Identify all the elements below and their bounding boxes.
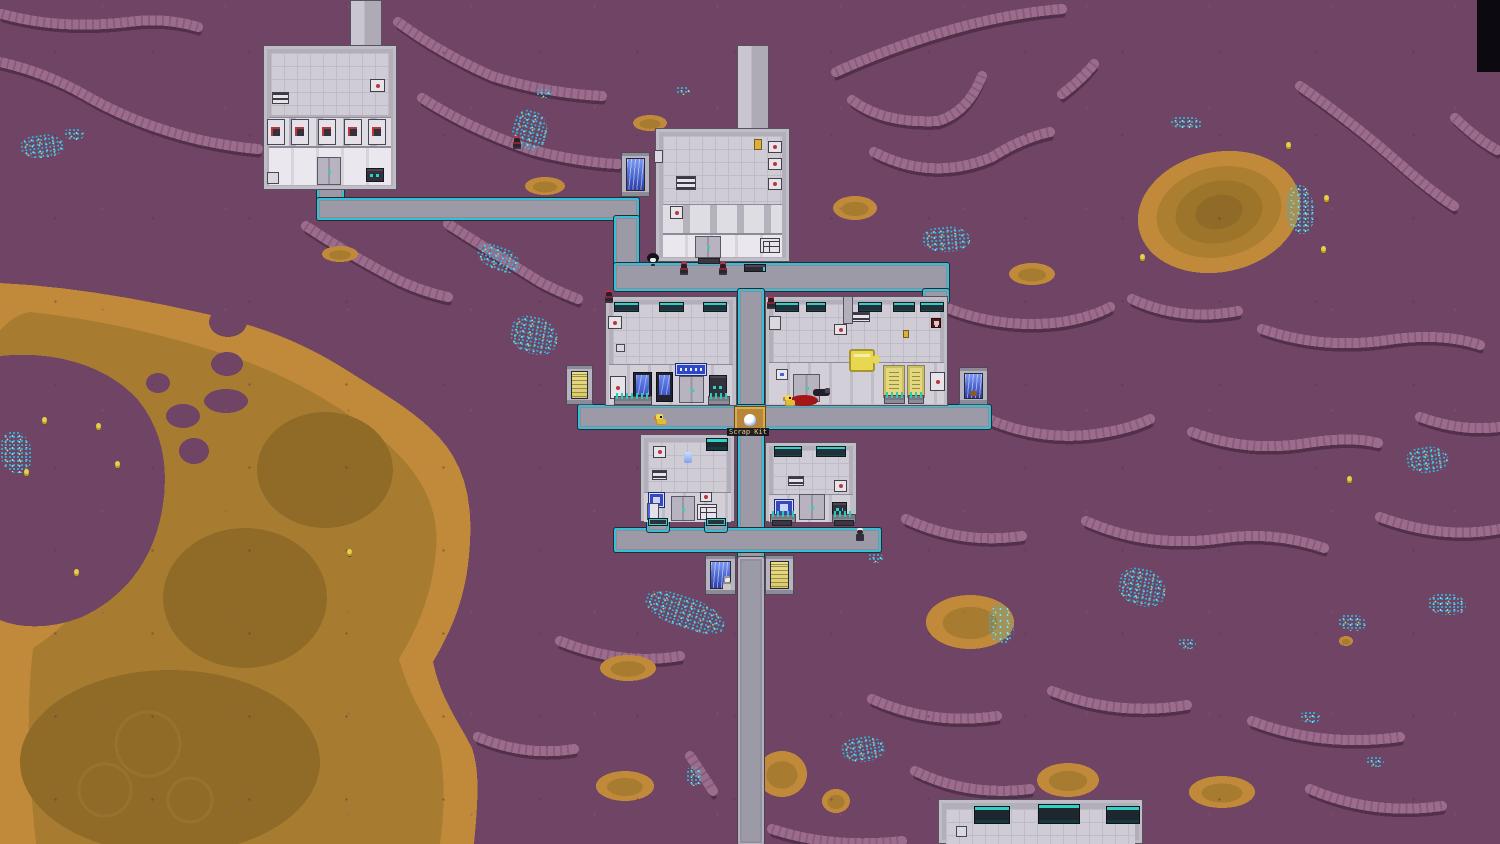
bunkhouse-device[interactable]	[370, 79, 385, 92]
depot-device[interactable]	[768, 158, 782, 170]
floor-unit[interactable]	[616, 344, 625, 352]
wall-vent	[816, 446, 846, 457]
small-critter[interactable]	[74, 569, 79, 576]
doormat	[834, 520, 854, 526]
depot-hall	[663, 136, 782, 204]
shop-lr-device[interactable]	[834, 480, 847, 492]
cafe-small-sign	[776, 369, 788, 380]
bunkhouse-crate[interactable]	[267, 172, 279, 184]
depot-atm[interactable]	[760, 238, 780, 253]
entry-mat	[706, 518, 726, 526]
street-bench[interactable]	[744, 264, 766, 272]
small-critter[interactable]	[115, 461, 120, 468]
shop-west-sign	[676, 364, 706, 375]
shop-ll-door[interactable]	[671, 496, 695, 521]
duck[interactable]	[784, 395, 796, 407]
cafe-kiosk[interactable]	[930, 372, 945, 391]
billboard-west-screen	[571, 371, 588, 399]
planter	[614, 396, 652, 405]
vending-machine[interactable]	[656, 372, 673, 402]
wall-vent	[703, 302, 727, 312]
cafe-crate[interactable]	[769, 316, 781, 330]
billboard-west[interactable]	[566, 365, 593, 405]
wall-vent	[858, 302, 882, 312]
teal-speckle-patch	[868, 553, 884, 563]
small-critter[interactable]	[1324, 195, 1329, 202]
teal-speckle-patch	[1338, 614, 1366, 631]
locker[interactable]	[318, 119, 336, 145]
teal-speckle-patch	[1170, 116, 1202, 129]
cafe-console[interactable]	[852, 312, 870, 322]
road-central-lower	[737, 556, 765, 844]
shop-west-hall	[613, 304, 729, 364]
villager-whitehair[interactable]	[855, 528, 865, 543]
bunkhouse-chimney[interactable]	[350, 0, 382, 50]
small-critter[interactable]	[1347, 476, 1352, 483]
teal-speckle-patch	[1300, 711, 1320, 723]
depot-console[interactable]	[676, 176, 696, 190]
corner-ui-panel	[1477, 0, 1500, 72]
gold-item[interactable]	[903, 330, 909, 338]
teal-speckle-patch	[1428, 593, 1466, 615]
depot-device[interactable]	[768, 141, 782, 153]
wall-vent	[893, 302, 915, 312]
small-critter[interactable]	[96, 423, 101, 430]
depot-door[interactable]	[695, 236, 721, 258]
skeleton-villager[interactable]	[721, 576, 732, 592]
cafe-device[interactable]	[834, 324, 847, 335]
shop-ll-device[interactable]	[700, 492, 712, 502]
doormat	[698, 258, 720, 264]
depot-device[interactable]	[670, 206, 683, 219]
wall-vent	[775, 302, 799, 312]
planter	[708, 396, 730, 405]
warehouse-tile	[956, 826, 967, 837]
villager-punk[interactable]	[718, 262, 728, 276]
depot-chimney[interactable]	[737, 45, 769, 130]
bunkhouse-terminal[interactable]	[366, 168, 384, 182]
billboard-north[interactable]	[621, 152, 650, 197]
billboard-east[interactable]	[959, 367, 988, 405]
shop-ll-device[interactable]	[653, 446, 666, 458]
teal-speckle-patch	[64, 128, 84, 140]
villager-afro[interactable]	[646, 253, 660, 269]
small-critter[interactable]	[1140, 254, 1145, 261]
villager-punk[interactable]	[679, 262, 689, 276]
small-critter[interactable]	[347, 549, 352, 556]
game-map[interactable]: Scrap Kit	[0, 0, 1500, 844]
doormat	[772, 520, 792, 526]
shop-lr-door[interactable]	[799, 494, 825, 520]
small-critter[interactable]	[24, 469, 29, 476]
teal-speckle-patch	[536, 88, 552, 98]
depot-device[interactable]	[768, 178, 782, 190]
depot-wall-unit[interactable]	[654, 150, 663, 163]
gold-item[interactable]	[754, 139, 762, 150]
locker[interactable]	[368, 119, 386, 145]
shop-lr-console[interactable]	[788, 476, 804, 486]
villager-punk[interactable]	[512, 136, 522, 150]
warehouse-vent	[974, 806, 1010, 824]
wall-vent	[806, 302, 826, 312]
villager-punk[interactable]	[604, 290, 614, 304]
duck[interactable]	[655, 414, 667, 426]
road-west-avenue	[316, 197, 640, 221]
dark-creature[interactable]	[813, 388, 830, 397]
road-south-street	[577, 404, 992, 430]
billboard-south-right-screen	[770, 561, 789, 589]
teal-speckle-patch	[686, 766, 702, 786]
billboard-south-right[interactable]	[765, 555, 794, 595]
small-critter[interactable]	[1321, 246, 1326, 253]
road-north-street	[613, 262, 950, 292]
wall-vent	[614, 302, 639, 312]
shop-ll-console[interactable]	[652, 470, 667, 480]
hologram-figure	[684, 452, 692, 463]
coffee-cup-sign	[849, 349, 875, 372]
entry-mat	[648, 518, 668, 526]
villager-punk[interactable]	[766, 296, 776, 310]
shop-west-door[interactable]	[679, 376, 704, 403]
planter	[884, 395, 905, 404]
locker[interactable]	[344, 119, 362, 145]
road-west-leg	[613, 215, 640, 269]
teal-speckle-patch	[1366, 756, 1384, 767]
locker[interactable]	[267, 119, 285, 145]
deer-figure	[970, 391, 977, 396]
skull-poster	[931, 318, 941, 328]
bunkhouse-console[interactable]	[272, 92, 289, 104]
warehouse-vent	[1106, 806, 1140, 824]
warehouse-vent	[1038, 804, 1080, 824]
planter	[908, 395, 924, 404]
wall-vent	[774, 446, 802, 457]
small-critter[interactable]	[42, 417, 47, 424]
roof-unit	[706, 438, 728, 451]
shop-west-device[interactable]	[608, 316, 622, 329]
bunkhouse-door[interactable]	[317, 157, 341, 185]
teal-speckle-patch	[676, 86, 690, 95]
item-name-tag: Scrap Kit	[727, 428, 769, 436]
billboard-east-screen	[964, 373, 983, 399]
small-critter[interactable]	[1286, 142, 1291, 149]
wall-vent	[920, 302, 944, 312]
teal-speckle-patch	[1178, 638, 1196, 649]
billboard-north-screen	[626, 158, 645, 191]
locker[interactable]	[291, 119, 309, 145]
wall-vent	[659, 302, 684, 312]
